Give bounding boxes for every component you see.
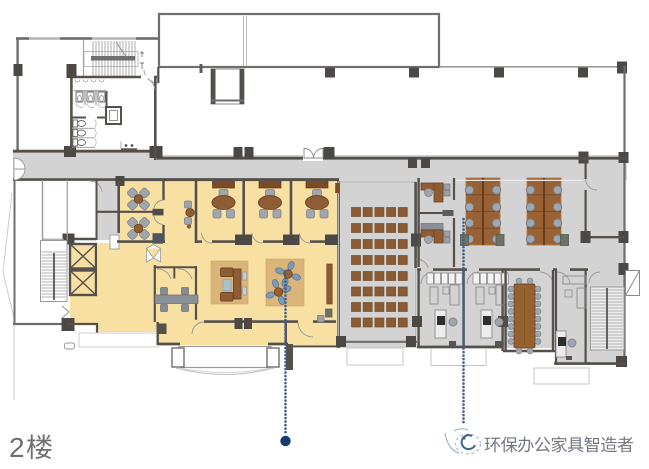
svg-text:2: 2 bbox=[9, 432, 25, 463]
